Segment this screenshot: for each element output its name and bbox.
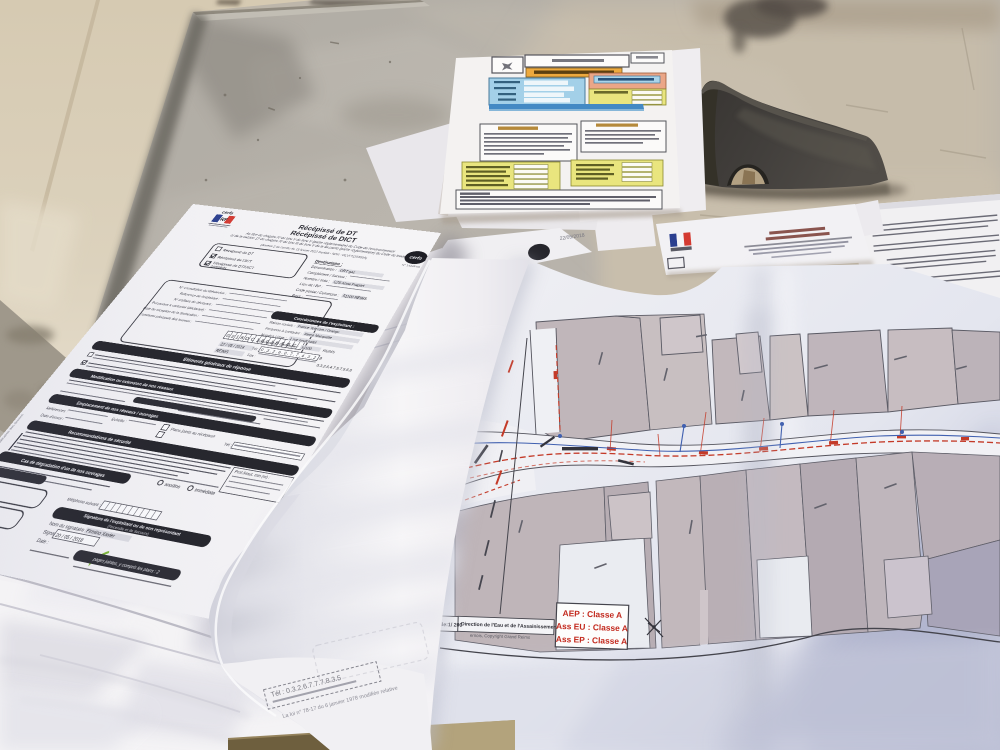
svg-text:Echelle:1/ 200: Echelle:1/ 200: [428, 622, 463, 629]
svg-text:AEP : Classe A: AEP : Classe A: [562, 608, 622, 620]
